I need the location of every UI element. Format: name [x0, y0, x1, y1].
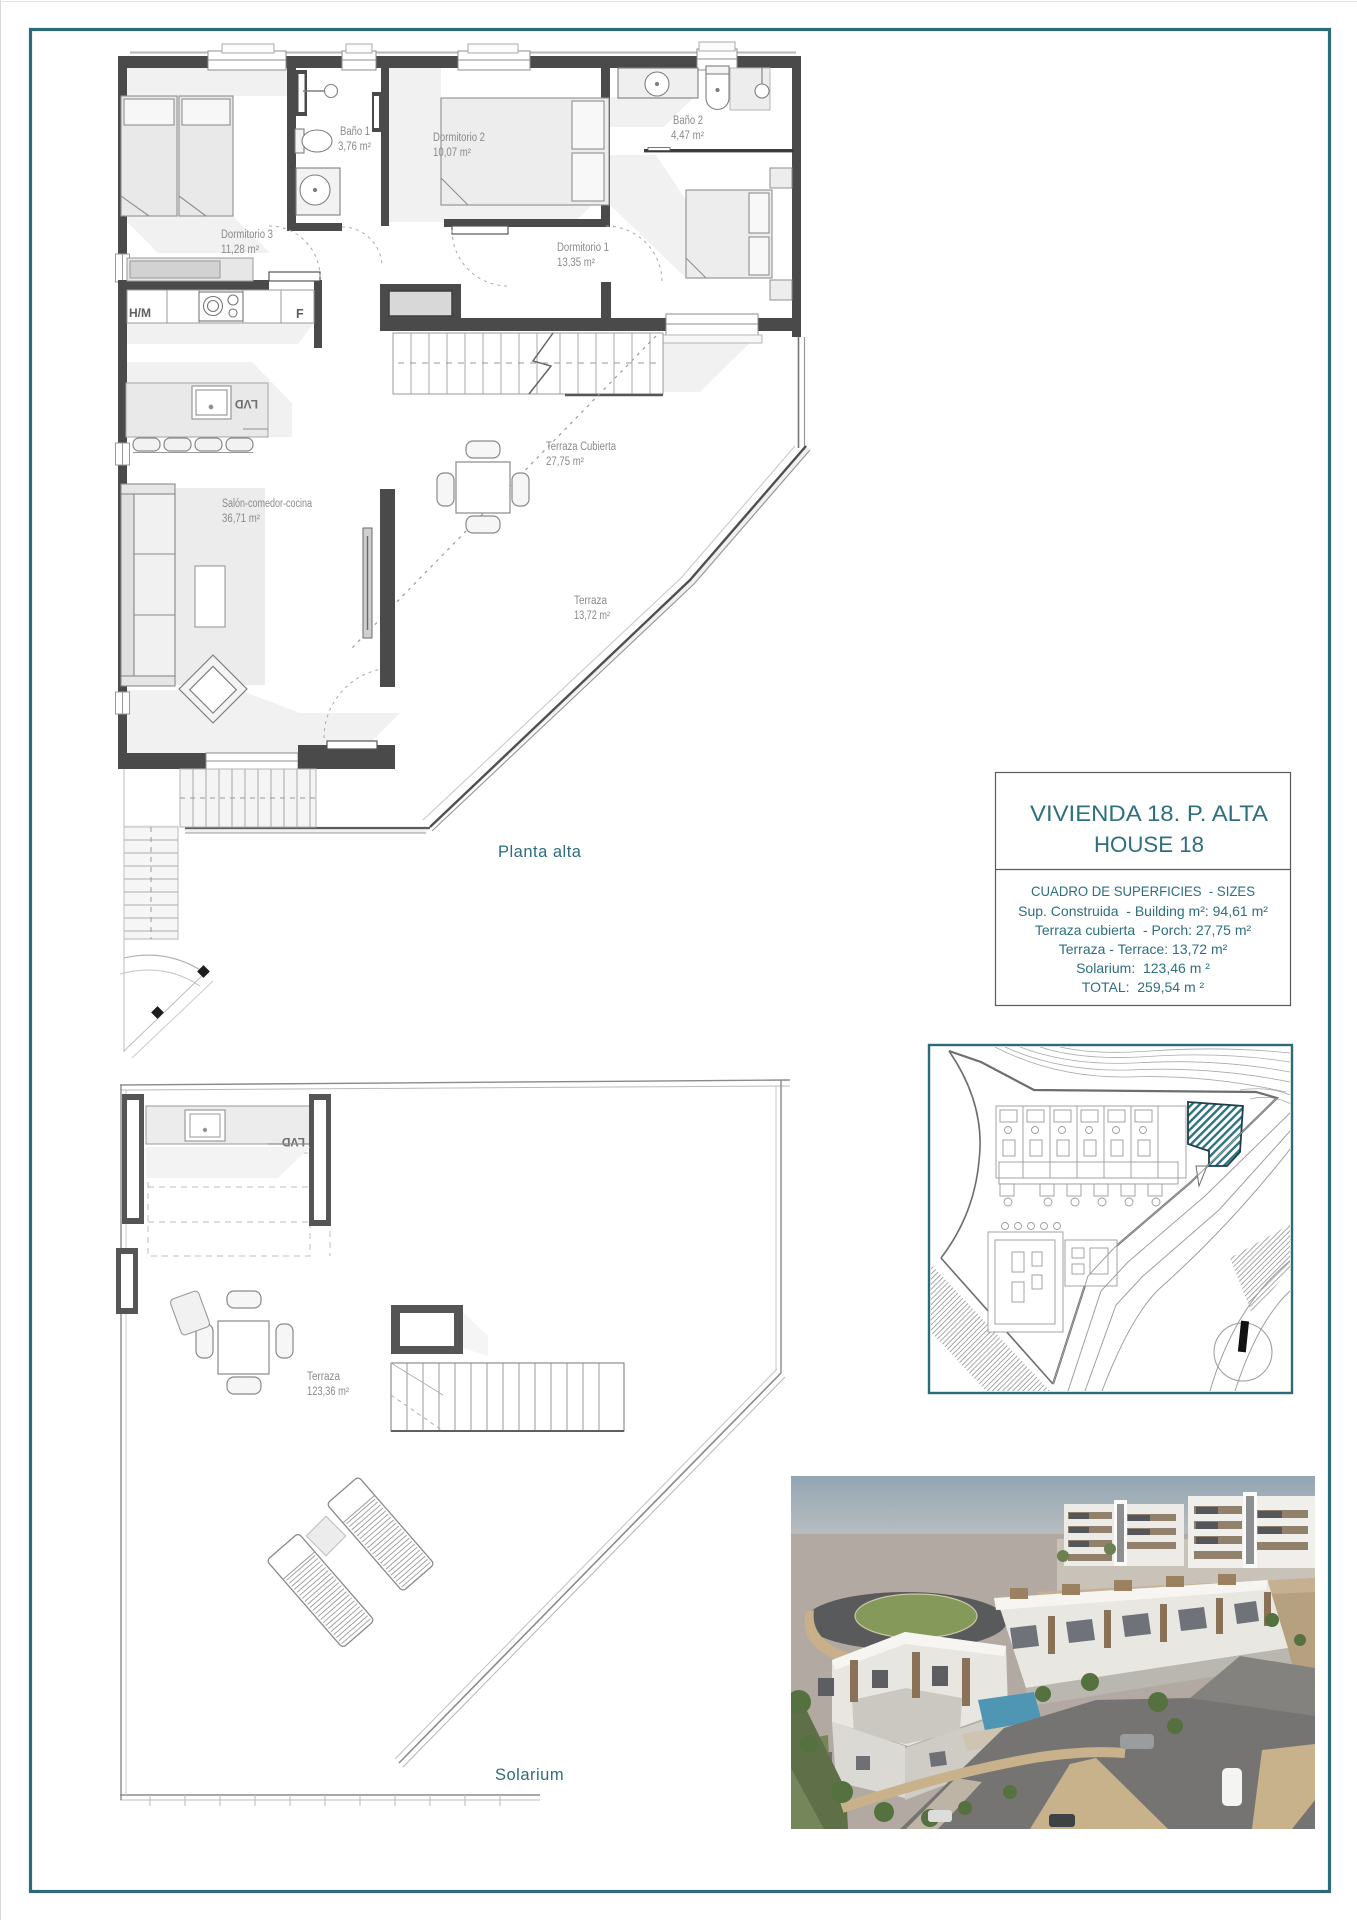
svg-text:13,35 m²: 13,35 m²: [557, 257, 595, 269]
svg-text:LVD: LVD: [235, 397, 258, 411]
svg-text:VIVIENDA 18. P. ALTA: VIVIENDA 18. P. ALTA: [1030, 801, 1268, 826]
svg-text:Dormitorio 2: Dormitorio 2: [433, 132, 485, 144]
svg-text:Terraza: Terraza: [307, 1371, 341, 1383]
svg-text:Solarium: 123,46 m ²: Solarium: 123,46 m ²: [1076, 960, 1210, 976]
svg-text:Solarium: Solarium: [495, 1766, 564, 1784]
svg-text:Baño 2: Baño 2: [673, 115, 703, 127]
svg-text:Terraza - Terrace: 13,72 m²: Terraza - Terrace: 13,72 m²: [1059, 941, 1228, 957]
svg-text:27,75 m²: 27,75 m²: [546, 456, 584, 468]
svg-text:123,36 m²: 123,36 m²: [307, 1386, 349, 1398]
svg-text:13,72 m²: 13,72 m²: [574, 610, 610, 622]
svg-text:Dormitorio 3: Dormitorio 3: [221, 229, 273, 241]
svg-text:Planta alta: Planta alta: [498, 843, 582, 861]
svg-text:Baño 1: Baño 1: [340, 126, 370, 138]
svg-text:36,71 m²: 36,71 m²: [222, 513, 260, 525]
svg-text:Sup. Construida - Building m²: Sup. Construida - Building m²: 94,61 m²: [1018, 903, 1268, 919]
svg-text:F: F: [296, 307, 304, 321]
svg-text:11,28 m²: 11,28 m²: [221, 244, 259, 256]
svg-text:Terraza Cubierta: Terraza Cubierta: [546, 441, 616, 453]
svg-text:10,07 m²: 10,07 m²: [433, 147, 471, 159]
svg-text:Dormitorio 1: Dormitorio 1: [557, 242, 609, 254]
svg-text:Terraza: Terraza: [574, 595, 608, 607]
svg-text:LVD: LVD: [282, 1135, 305, 1149]
svg-text:H/M: H/M: [129, 308, 151, 320]
svg-text:TOTAL: 259,54 m ²: TOTAL: 259,54 m ²: [1082, 979, 1205, 995]
svg-text:4,47 m²: 4,47 m²: [671, 130, 704, 142]
svg-text:3,76 m²: 3,76 m²: [338, 141, 371, 153]
svg-text:Terraza cubierta - Porch: 27,: Terraza cubierta - Porch: 27,75 m²: [1035, 922, 1252, 938]
svg-text:HOUSE 18: HOUSE 18: [1094, 832, 1204, 857]
svg-text:CUADRO DE SUPERFICIES - SIZES: CUADRO DE SUPERFICIES - SIZES: [1031, 883, 1255, 899]
svg-text:Salón-comedor-cocina: Salón-comedor-cocina: [222, 498, 312, 510]
